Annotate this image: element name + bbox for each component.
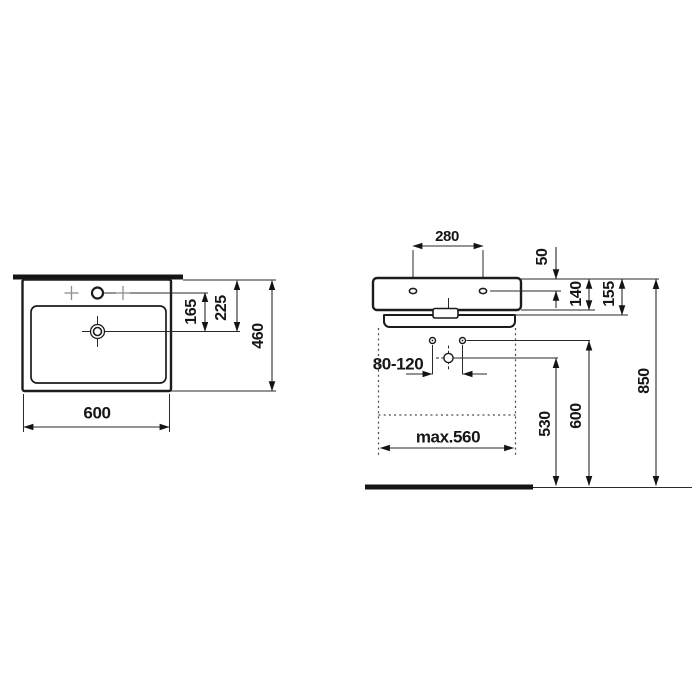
technical-drawing-canvas: 165 225 460 600 280 xyxy=(0,0,700,700)
dim-600-height-label: 600 xyxy=(568,403,585,429)
dim-600-label: 600 xyxy=(83,403,110,422)
dim-850-label: 850 xyxy=(636,368,653,394)
washbasin-dimension-drawing: 165 225 460 600 280 xyxy=(0,0,700,700)
dim-155-label: 155 xyxy=(601,281,618,307)
dim-165-label: 165 xyxy=(183,299,200,325)
floor-line-bar xyxy=(365,485,533,490)
basin-body-front xyxy=(373,278,521,310)
dim-50-label: 50 xyxy=(534,248,551,265)
dim-max560-label: max.560 xyxy=(416,427,480,446)
dim-280-label: 280 xyxy=(435,228,459,245)
dim-460-label: 460 xyxy=(250,323,267,349)
taphole-left-icon xyxy=(409,288,416,293)
dim-530-label: 530 xyxy=(537,411,554,437)
front-view: 280 50 140 155 xyxy=(365,228,692,490)
basin-inner-bowl xyxy=(31,306,166,383)
dim-140-label: 140 xyxy=(568,281,585,307)
dim-80-120-label: 80-120 xyxy=(373,354,424,373)
top-view: 165 225 460 600 xyxy=(13,275,276,433)
dim-225-label: 225 xyxy=(213,295,230,321)
taphole-right-icon xyxy=(479,288,486,293)
fixing-hole-left-icon xyxy=(430,338,436,344)
taphole-icon xyxy=(92,288,103,299)
fixing-hole-right-icon xyxy=(460,338,466,344)
overflow-notch xyxy=(433,309,458,319)
